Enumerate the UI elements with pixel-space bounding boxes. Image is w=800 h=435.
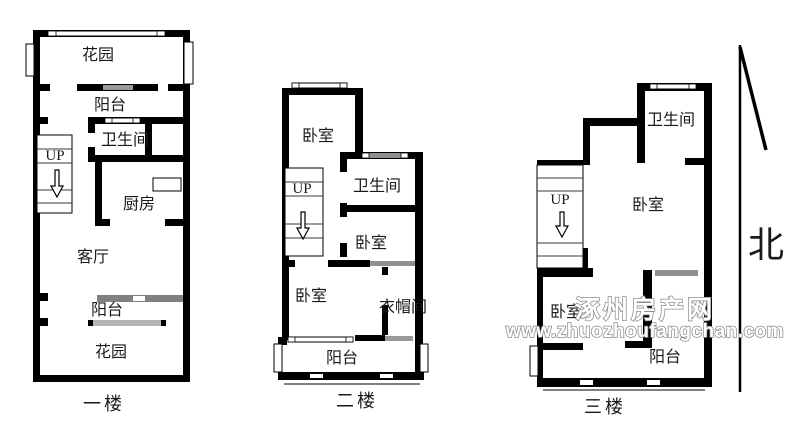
floor1-name: 一楼 (83, 394, 125, 414)
floor1-kitchen-label: 厨房 (123, 195, 155, 213)
floor1-garden-top-label: 花园 (82, 46, 114, 64)
north-arrow-head (740, 47, 766, 150)
floor2-name: 二楼 (336, 391, 378, 411)
floor2-bedroom-bottom-label: 卧室 (295, 287, 327, 305)
floor1-garden-bottom-label: 花园 (95, 343, 127, 361)
floor2-up-label: UP (292, 181, 311, 197)
floor3-bathroom-label: 卫生间 (647, 111, 695, 129)
floor-plan-image: UP 花园 阳台 卫生间 厨房 客厅 阳台 花园 一楼 (0, 0, 800, 435)
floor2-bathroom-label: 卫生间 (353, 177, 401, 195)
floor1-up-label: UP (45, 148, 64, 164)
floor2-plan: UP 卧室 卫生间 卧室 卧室 衣帽间 阳台 二楼 (274, 83, 428, 411)
floor1-staircase: UP (37, 135, 72, 213)
floor1-bathroom-label: 卫生间 (101, 131, 149, 149)
floor1-living-room-label: 客厅 (77, 248, 109, 266)
floor3-balcony-label: 阳台 (649, 348, 681, 366)
north-label: 北 (748, 225, 784, 265)
floor2-balcony-label: 阳台 (326, 349, 358, 367)
floor-plan-page: UP 花园 阳台 卫生间 厨房 客厅 阳台 花园 一楼 (0, 0, 800, 435)
floor2-bedroom-top-label: 卧室 (302, 127, 334, 145)
floor1-plan: UP 花园 阳台 卫生间 厨房 客厅 阳台 花园 一楼 (26, 30, 193, 414)
floor2-staircase: UP (285, 168, 323, 256)
floor2-bedroom-mid-label: 卧室 (355, 234, 387, 252)
floor3-name: 三楼 (584, 397, 626, 417)
floor3-bedroom-main-label: 卧室 (632, 196, 664, 214)
watermark-site-url: www.zhuozhoufangchan.com (505, 321, 784, 342)
floor2-cloakroom-label: 衣帽间 (379, 298, 427, 316)
floor1-balcony-bottom-label: 阳台 (91, 301, 123, 319)
floor3-staircase: UP (537, 165, 583, 268)
floor3-up-label: UP (550, 192, 569, 208)
floor3-plan: UP 卫生间 卧室 卧室 阳台 三楼 (530, 83, 712, 417)
watermark: 涿州房产网 www.zhuozhoufangchan.com (505, 295, 784, 342)
floor1-balcony-top-label: 阳台 (94, 96, 126, 114)
floor1-room-labels: 花园 阳台 卫生间 厨房 客厅 阳台 花园 (77, 46, 155, 361)
watermark-site-name: 涿州房产网 (575, 295, 715, 324)
